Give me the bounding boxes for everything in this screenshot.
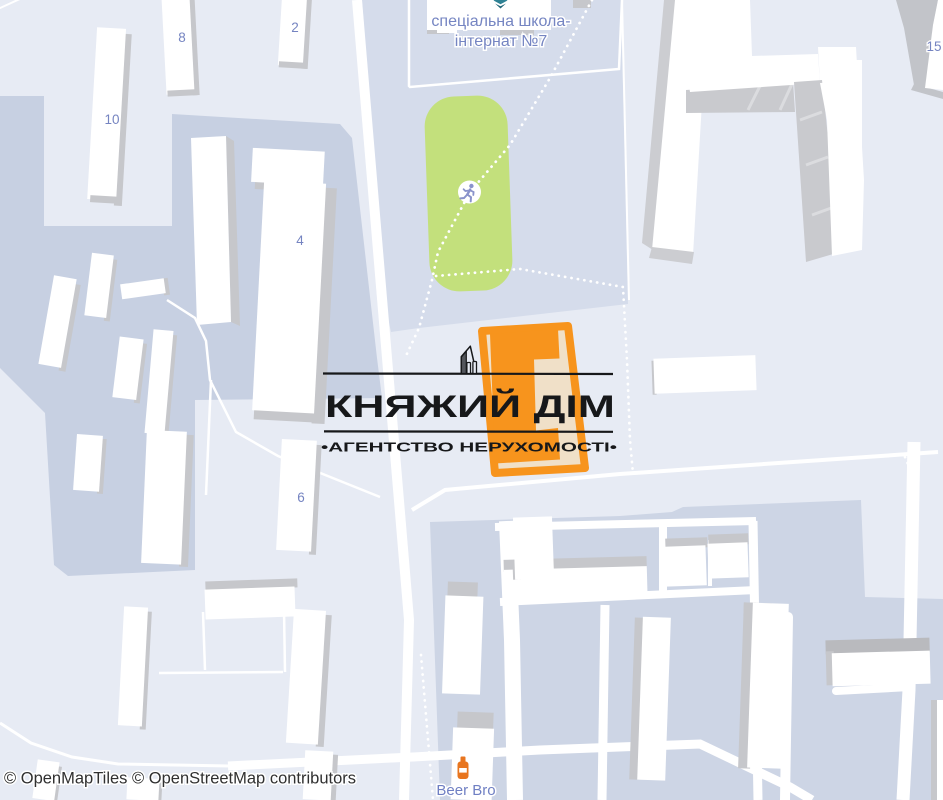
svg-text:10: 10 <box>104 112 119 127</box>
svg-text:Beer Bro: Beer Bro <box>436 782 495 799</box>
svg-text:спеціальна школа-: спеціальна школа- <box>431 13 570 30</box>
svg-text:8: 8 <box>178 30 186 45</box>
svg-text:4: 4 <box>296 233 304 248</box>
svg-text:інтернат №7: інтернат №7 <box>455 33 548 50</box>
svg-text:2: 2 <box>291 20 299 35</box>
svg-text:•АГЕНТСТВО НЕРУХОМОСТІ•: •АГЕНТСТВО НЕРУХОМОСТІ• <box>321 440 618 455</box>
svg-text:6: 6 <box>297 490 305 505</box>
svg-text:15: 15 <box>926 39 941 54</box>
svg-text:© OpenMapTiles © OpenStreetMap: © OpenMapTiles © OpenStreetMap contribut… <box>4 770 356 788</box>
svg-text:КНЯЖИЙ ДІМ: КНЯЖИЙ ДІМ <box>325 388 615 424</box>
